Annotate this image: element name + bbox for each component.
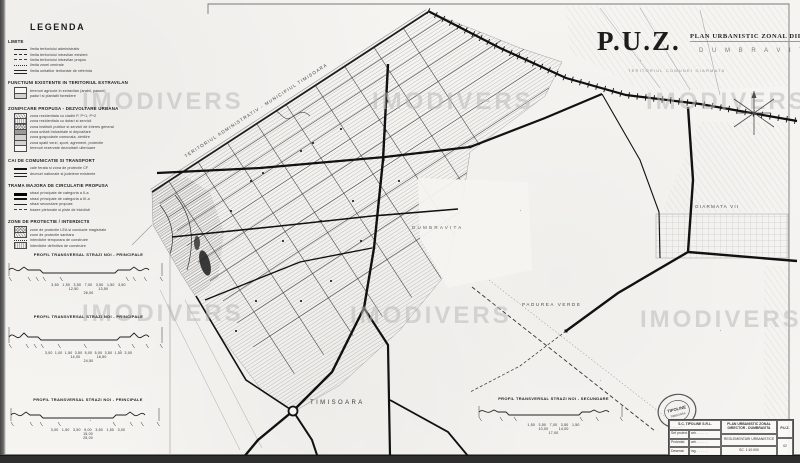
line-symbol [14, 207, 27, 212]
timisoara-label: TIMISOARA [310, 400, 365, 406]
profile-drawing [6, 257, 166, 283]
legend-item-label: limita zonei centrale [30, 63, 64, 67]
area-symbol [14, 145, 27, 152]
legend-section-cai: CAI DE COMUNICATIE SI TRANSPORT cale fer… [8, 158, 160, 176]
legend-item-label: limita teritoriului intravilan existent [30, 53, 88, 57]
compass-icon [728, 88, 780, 138]
legend-section-title: FUNCTIUNI EXISTENTE IN TERITORIUL EXTRAV… [8, 80, 160, 85]
role-value: arh. . . . . . . [689, 439, 721, 448]
dumbravita-label: DUMBRAVITA [412, 225, 463, 230]
scan-edge-left [0, 0, 6, 463]
role-label: Sef proiect [669, 430, 689, 439]
legend-item: paduri si plantatii forestiere [14, 93, 160, 98]
legend-title: LEGENDA [30, 22, 160, 32]
legend-item: limita unitatilor teritoriale de referin… [14, 68, 160, 73]
legend-item-label: strazi secundare propuse [30, 202, 73, 206]
profile-dims: 25,00 [8, 436, 168, 440]
legend-section-functiuni: FUNCTIUNI EXISTENTE IN TERITORIUL EXTRAV… [8, 80, 160, 98]
legend-item-label: limita teritoriului administrativ [30, 47, 79, 51]
puz-title: P.U.Z. [597, 26, 681, 57]
legend-item-label: zona institutii publice si servicii de i… [30, 125, 114, 129]
territory-note: TERITORIUL COMUNEI GIARMATA [628, 68, 725, 73]
puz-locality: D U M B R A V I T A [699, 48, 800, 54]
legend-section-title: CAI DE COMUNICATIE SI TRANSPORT [8, 158, 160, 163]
line-symbol [14, 68, 27, 73]
line-symbol [14, 196, 27, 201]
line-symbol [14, 52, 27, 57]
legend-item: interdictie definitiva de construire [14, 243, 160, 248]
legend-section-protectie: ZONE DE PROTECTIE / INTERDICTII zone de … [8, 219, 160, 248]
sheet-number-cell: 02 [777, 438, 793, 456]
sheet-title: REGLEMENTARI URBANISTICE [721, 434, 777, 446]
legend-item-label: limita teritoriului intravilan propus [30, 58, 86, 62]
legend-item-label: zona unitati industriale si depozitare [30, 130, 91, 134]
legend-item-label: trasee pietonale si piste de biciclisti [30, 208, 90, 212]
profile-dims: 17,00 [476, 431, 631, 435]
legend-item: trasee pietonale si piste de biciclisti [14, 207, 160, 212]
line-symbol [14, 166, 27, 171]
role-value: arh. . . . . . . [689, 430, 721, 439]
legend-item-label: interdictie temporara de construire [30, 238, 88, 242]
legend-item-label: paduri si plantatii forestiere [30, 94, 76, 98]
area-symbol [14, 93, 27, 100]
profile-dims: 26,00 [6, 291, 171, 295]
line-symbol [14, 171, 27, 176]
profile-drawing [8, 402, 163, 428]
legend-section-limite: LIMITE limita teritoriului administrativ… [8, 39, 160, 73]
legend-item-label: zona rezidentiala cu cladiri P, P+1, P+2 [30, 114, 96, 118]
role-label: Proiectat [669, 439, 689, 448]
legend-section-title: LIMITE [8, 39, 160, 44]
legend-item-label: zone de protectie sanitara [30, 233, 74, 237]
company-name: S.C. TIPOLINE S.R.L. [669, 420, 721, 430]
profile-drawing [476, 401, 626, 423]
project-title: PLAN URBANISTIC ZONAL DIRECTOR - DUMBRAV… [721, 420, 777, 434]
scan-edge-bottom [0, 455, 800, 463]
profile-drawing [6, 319, 166, 351]
profile-dims: 24,50 [6, 359, 171, 363]
profile-title: PROFIL TRANSVERSAL STRAZI NOI - SECUNDAR… [476, 396, 631, 401]
legend-item-label: terenuri rezervate dezvoltarii ulterioar… [30, 146, 95, 150]
title-block: S.C. TIPOLINE S.R.L. Sef proiect arh. . … [668, 419, 794, 457]
legend-item: drumuri nationale si judetene existente [14, 171, 160, 176]
line-symbol [14, 63, 27, 68]
legend-section-title: ZONE DE PROTECTIE / INTERDICTII [8, 219, 160, 224]
padurea-verde-label: PADUREA VERDE [522, 302, 582, 307]
legend-section-trama: TRAMA MAJORA DE CIRCULATIE PROPUSA straz… [8, 183, 160, 212]
phase-cell: P.U.Z. [777, 420, 793, 438]
profile-1: PROFIL TRANSVERSAL STRAZI NOI - PRINCIPA… [6, 252, 171, 295]
line-symbol [14, 47, 27, 52]
legend-item-label: zone de protectie LEA si conducte magist… [30, 228, 106, 232]
legend-section-title: TRAMA MAJORA DE CIRCULATIE PROPUSA [8, 183, 160, 188]
legend-item-label: interdictie definitiva de construire [30, 244, 86, 248]
area-symbol [14, 242, 27, 249]
legend-item-label: strazi principale de categoria a II-a [30, 191, 89, 195]
line-symbol [14, 57, 27, 62]
legend-item-label: zona rezidentiala cu dotari si servicii [30, 119, 91, 123]
legend-item-label: drumuri nationale si judetene existente [30, 172, 95, 176]
legend-item-label: cale ferata si zona de protectie CF [30, 166, 88, 170]
profile-4: PROFIL TRANSVERSAL STRAZI NOI - SECUNDAR… [476, 396, 631, 435]
puz-subtitle: PLAN URBANISTIC ZONAL DIRECTOR [690, 33, 800, 42]
scanned-map-page: IMODIVERS IMODIVERS IMODIVERS IMODIVERS … [0, 0, 800, 463]
legend-section-zonificare: ZONIFICARE PROPUSA - DEZVOLTARE URBANA z… [8, 106, 160, 151]
line-symbol [14, 191, 27, 196]
legend-item-label: terenuri agricole in extravilan (arabil,… [30, 89, 106, 93]
legend-item-label: zona gospodarie comunala, cimitire [30, 135, 90, 139]
profile-2: PROFIL TRANSVERSAL STRAZI NOI - PRINCIPA… [6, 314, 171, 363]
legend-panel: LEGENDA LIMITE limita teritoriului admin… [8, 22, 160, 248]
line-symbol [14, 202, 27, 207]
legend-item-label: zona spatii verzi, sport, agrement, prot… [30, 141, 103, 145]
profile-3: PROFIL TRANSVERSAL STRAZI NOI - PRINCIPA… [8, 397, 168, 440]
giarmata-vii-label: GIARMATA VII [695, 204, 739, 209]
legend-item-label: limita unitatilor teritoriale de referin… [30, 69, 92, 73]
legend-section-title: ZONIFICARE PROPUSA - DEZVOLTARE URBANA [8, 106, 160, 111]
legend-item: terenuri rezervate dezvoltarii ulterioar… [14, 146, 160, 151]
legend-item-label: strazi principale de categoria a III-a [30, 197, 90, 201]
